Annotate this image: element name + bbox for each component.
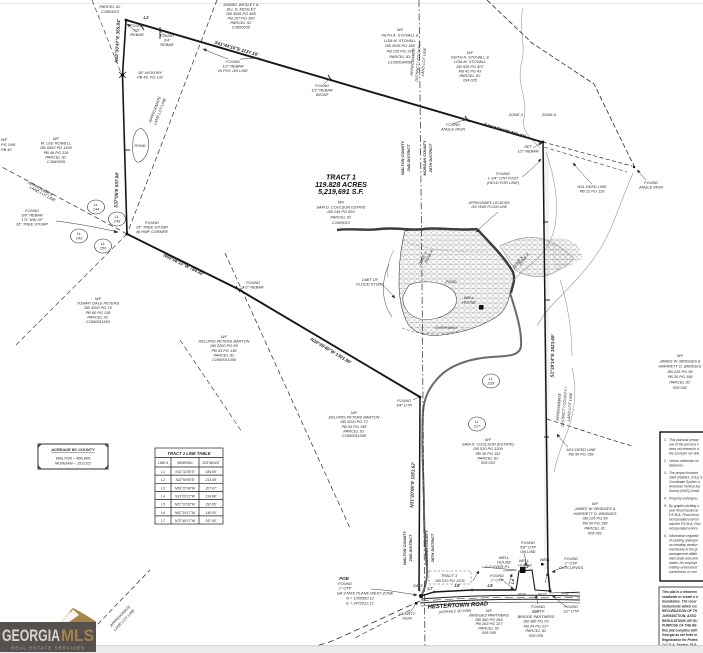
svg-text:(HELD FOR LINE): (HELD FOR LINE): [487, 180, 520, 185]
svg-text:F.E.M.A. Flood Insur: F.E.M.A. Flood Insur: [669, 513, 700, 517]
svg-text:228: 228: [487, 381, 495, 386]
svg-text:034 025: 034 025: [463, 78, 478, 83]
svg-text:2.: 2.: [663, 459, 667, 463]
svg-text:American Vertical Da: American Vertical Da: [668, 485, 700, 489]
svg-text:N72°48'17"W: N72°48'17"W: [175, 519, 196, 523]
svg-text:143: 143: [76, 236, 83, 241]
svg-text:L3: L3: [161, 486, 165, 490]
svg-text:L3: L3: [524, 564, 530, 569]
svg-text:MORGAN COUNTY: MORGAN COUNTY: [422, 140, 427, 176]
svg-text:the surveyor nor doe: the surveyor nor doe: [669, 452, 699, 456]
svg-text:does not extend to a: does not extend to a: [669, 447, 699, 451]
svg-text:S1°39'14"E 1523.69': S1°39'14"E 1523.69': [550, 334, 556, 378]
svg-text:150: 150: [100, 246, 107, 251]
svg-text:and the F.E.M.A. Floo: and the F.E.M.A. Floo: [669, 522, 701, 526]
svg-text:N57°23'32"W: N57°23'32"W: [175, 503, 196, 507]
svg-text:227: 227: [473, 424, 481, 429]
svg-text:L4: L4: [161, 495, 165, 499]
svg-text:IN PVC ON LINE: IN PVC ON LINE: [218, 68, 248, 73]
svg-text:W/CAP: W/CAP: [316, 92, 329, 97]
svg-text:REBAR: REBAR: [130, 32, 144, 37]
svg-text:L8: L8: [455, 583, 461, 588]
svg-text:3/4" OTP: 3/4" OTP: [396, 403, 412, 408]
svg-text:WALTON COUNTY: WALTON COUNTY: [400, 141, 405, 175]
svg-text:Coordinate System a: Coordinate System a: [669, 480, 700, 484]
svg-text:HOUSE: HOUSE: [462, 300, 476, 305]
svg-text:this plat complies with: this plat complies with: [662, 628, 697, 632]
svg-text:PB 12 PG 126: PB 12 PG 126: [580, 189, 606, 194]
svg-text:LISA M. STOVALL: LISA M. STOVALL: [384, 38, 416, 43]
svg-text:N62°19'17"W: N62°19'17"W: [175, 511, 196, 515]
svg-text:L1: L1: [161, 470, 165, 474]
svg-text:ANGLE IRON: ANGLE IRON: [638, 185, 663, 190]
svg-text:JAMES W. BRIDGES &: JAMES W. BRIDGES &: [659, 358, 701, 363]
svg-text:GEORGIA: GEORGIA: [2, 626, 60, 645]
svg-text:HARRIETT D. BRIDGES: HARRIETT D. BRIDGES: [658, 364, 701, 369]
svg-text:PARCEL ID:: PARCEL ID:: [330, 215, 351, 220]
svg-text:DB 510 PG 1105: DB 510 PG 1105: [435, 578, 465, 583]
svg-text:MLS: MLS: [61, 626, 94, 645]
svg-text:149: 149: [114, 219, 121, 224]
svg-text:WALTON COUNTY: WALTON COUNTY: [402, 531, 407, 565]
svg-text:ACREAGE BY COUNTY: ACREAGE BY COUNTY: [50, 447, 95, 452]
svg-text:45.03': 45.03': [518, 592, 527, 596]
svg-text:L2: L2: [161, 478, 165, 482]
svg-text:140.00': 140.00': [205, 511, 216, 515]
svg-text:N58°22'46"W: N58°22'46"W: [175, 486, 196, 490]
svg-text:167.40': 167.40': [205, 519, 216, 523]
svg-text:MORGAN COUNTY: MORGAN COUNTY: [424, 530, 429, 566]
svg-text:PARCEL ID:: PARCEL ID:: [669, 380, 690, 385]
svg-text:WELL: WELL: [540, 557, 551, 562]
svg-text:REBAR: REBAR: [160, 42, 174, 47]
svg-text:REGULATIONS OR GU: REGULATIONS OR GU: [662, 619, 698, 623]
svg-text:OVERHANG: OVERHANG: [435, 325, 457, 330]
svg-text:correctness or com: correctness or com: [669, 570, 697, 574]
svg-text:C1900013: C1900013: [332, 220, 351, 225]
svg-text:@ HWF CORNER: @ HWF CORNER: [136, 229, 168, 234]
svg-text:28TH DISTRICT: 28TH DISTRICT: [430, 533, 435, 563]
svg-text:JURISDICTION, ASSO: JURISDICTION, ASSO: [662, 614, 697, 618]
svg-text:L2: L2: [144, 15, 150, 20]
svg-text:The project horizont: The project horizont: [669, 471, 699, 475]
svg-text:114.88': 114.88': [206, 495, 217, 499]
svg-text:BEARING: BEARING: [177, 461, 193, 465]
svg-text:ZONE X: ZONE X: [508, 112, 524, 117]
svg-text:L7: L7: [428, 586, 434, 591]
svg-text:297.65': 297.65': [204, 503, 216, 507]
svg-text:DISTANCE: DISTANCE: [203, 461, 221, 465]
svg-text:DB 244 PG 693: DB 244 PG 693: [327, 209, 355, 214]
svg-text:E = 2472012.12: E = 2472012.12: [346, 601, 374, 606]
svg-text:R/W: R/W: [561, 591, 569, 596]
svg-text:ZONE A: ZONE A: [541, 112, 557, 117]
svg-text:PARCEL ID:: PARCEL ID:: [389, 54, 410, 59]
svg-text:28TH DISTRICT: 28TH DISTRICT: [428, 143, 433, 173]
svg-text:C1950011005: C1950011005: [212, 357, 237, 362]
svg-text:POND: POND: [134, 143, 145, 148]
svg-text:MORGAN – 153,022: MORGAN – 153,022: [55, 461, 92, 466]
svg-text:PB 30 PG 158: PB 30 PG 158: [668, 374, 694, 379]
svg-text:C1850035: C1850035: [232, 25, 251, 30]
svg-text:005 005: 005 005: [482, 630, 497, 635]
svg-text:C1840009: C1840009: [47, 159, 66, 164]
svg-text:PURPOSE OF THE RE: PURPOSE OF THE RE: [662, 624, 697, 628]
svg-text:This plat was prepar: This plat was prepar: [669, 438, 700, 442]
svg-text:PB 40: PB 40: [1, 147, 12, 152]
svg-text:Property undergrou: Property undergrou: [669, 497, 698, 501]
svg-text:GATE: GATE: [413, 583, 424, 588]
svg-text:S33°03'22"W: S33°03'22"W: [175, 495, 196, 499]
svg-text:arrangement utilitie: arrangement utilitie: [669, 552, 697, 556]
svg-text:no certainty whatso: no certainty whatso: [669, 543, 698, 547]
svg-text:4.: 4.: [664, 497, 667, 501]
svg-text:6.: 6.: [664, 534, 667, 538]
svg-text:N/F: N/F: [397, 27, 404, 32]
svg-text:N31°32'50"E: N31°32'50"E: [175, 470, 195, 474]
svg-text:KETH A. STOVALL &: KETH A. STOVALL &: [382, 32, 419, 37]
svg-text:use of the persons n: use of the persons n: [669, 443, 699, 447]
svg-text:2ND DISTRICT: 2ND DISTRICT: [406, 144, 411, 172]
svg-text:L7: L7: [161, 519, 165, 523]
svg-text:RECORDATION OF TH: RECORDATION OF TH: [662, 609, 698, 613]
svg-text:Registration for Profes: Registration for Profes: [662, 638, 698, 642]
svg-text:This plat is a retracem: This plat is a retracem: [662, 590, 697, 594]
svg-text:Unless otherwise no: Unless otherwise no: [669, 459, 699, 463]
svg-text:1" OTP: 1" OTP: [491, 578, 504, 583]
svg-text:L5: L5: [161, 503, 165, 507]
svg-text:005 009: 005 009: [529, 633, 544, 638]
svg-text:102.17': 102.17': [537, 592, 547, 596]
svg-text:instruments which cre: instruments which cre: [662, 604, 697, 608]
svg-text:PB 30 PG 158: PB 30 PG 158: [569, 452, 595, 457]
svg-text:1/2" REBAR: 1/2" REBAR: [517, 149, 538, 154]
svg-text:REAL ESTATE SERVICES: REAL ESTATE SERVICES: [11, 646, 85, 651]
svg-text:LINE #: LINE #: [158, 461, 168, 465]
svg-text:26" TREE STUMP: 26" TREE STUMP: [15, 222, 48, 227]
svg-text:C1850023: C1850023: [101, 9, 120, 14]
svg-text:ANGLE IRON: ANGLE IRON: [440, 127, 465, 132]
svg-text:Information regardin: Information regardin: [669, 534, 699, 538]
svg-text:213.68': 213.68': [204, 478, 216, 482]
svg-text:PB 46, PG 132: PB 46, PG 132: [137, 75, 164, 80]
svg-text:distances.: distances.: [669, 464, 684, 468]
svg-text:incorporated unincor: incorporated unincor: [669, 518, 700, 522]
svg-text:005 002: 005 002: [588, 530, 603, 535]
svg-text:100 YEAR FLOOD LINE: 100 YEAR FLOOD LINE: [471, 205, 508, 209]
svg-text:005 002: 005 002: [673, 385, 688, 390]
svg-text:boundaries. The recor: boundaries. The recor: [662, 600, 697, 604]
svg-text:C1950011003: C1950011003: [86, 319, 111, 324]
svg-text:POND: POND: [445, 279, 456, 284]
svg-text:owner, his employe: owner, his employe: [669, 561, 697, 565]
svg-text:entirely understood: entirely understood: [669, 566, 697, 570]
svg-text:5,219,691 S.F.: 5,219,691 S.F.: [318, 188, 364, 196]
svg-text:144: 144: [93, 207, 100, 212]
svg-text:N/F: N/F: [677, 353, 684, 358]
svg-text:1983 (NAD83, 2011) S: 1983 (NAD83, 2011) S: [669, 476, 703, 480]
svg-text:C1950011008: C1950011008: [342, 433, 367, 438]
svg-text:DB 226 PG 59: DB 226 PG 59: [667, 369, 693, 374]
svg-text:207.07': 207.07': [204, 486, 216, 490]
svg-text:incorporated uninco: incorporated uninco: [669, 527, 698, 531]
svg-text:1/2" OTP: 1/2" OTP: [563, 609, 579, 614]
svg-text:inaccurate and unre: inaccurate and unre: [669, 557, 698, 561]
svg-text:DB 3536 PG 368: DB 3536 PG 368: [385, 43, 415, 48]
svg-text:subdivide or create a n: subdivide or create a n: [662, 595, 698, 599]
svg-text:S42°50'50"E: S42°50'50"E: [175, 478, 195, 482]
svg-text:5.: 5.: [664, 504, 667, 508]
svg-text:1.: 1.: [664, 438, 667, 442]
svg-text:ON LINE: ON LINE: [520, 549, 536, 554]
svg-text:OUTCURVES: OUTCURVES: [559, 565, 584, 570]
svg-text:Georgia as set forth in: Georgia as set forth in: [662, 633, 697, 637]
svg-text:1/2" REBAR: 1/2" REBAR: [242, 285, 263, 290]
svg-text:0.2' OVER P.L.: 0.2' OVER P.L.: [485, 564, 511, 569]
svg-text:2ND DISTRICT: 2ND DISTRICT: [408, 534, 413, 562]
svg-text:L6: L6: [161, 511, 165, 515]
svg-text:membrane in the gr: membrane in the gr: [669, 548, 698, 552]
svg-text:TRACT 1 LINE TABLE: TRACT 1 LINE TABLE: [167, 451, 210, 456]
svg-text:By graphic plotting o: By graphic plotting o: [669, 504, 699, 508]
svg-text:184.60': 184.60': [205, 470, 216, 474]
svg-text:1" OTP: 1" OTP: [532, 609, 545, 614]
svg-text:SIGN: SIGN: [402, 616, 412, 621]
svg-text:FLOOD STUDY: FLOOD STUDY: [356, 282, 384, 287]
svg-text:L9: L9: [488, 583, 494, 588]
svg-text:005 003: 005 003: [481, 460, 496, 465]
svg-text:of existing undergro: of existing undergro: [669, 539, 698, 543]
svg-text:Survey (NGS) Geoid: Survey (NGS) Geoid: [669, 489, 699, 493]
svg-text:3.: 3.: [664, 471, 667, 475]
svg-text:year flood hazard ar: year flood hazard ar: [668, 509, 699, 513]
